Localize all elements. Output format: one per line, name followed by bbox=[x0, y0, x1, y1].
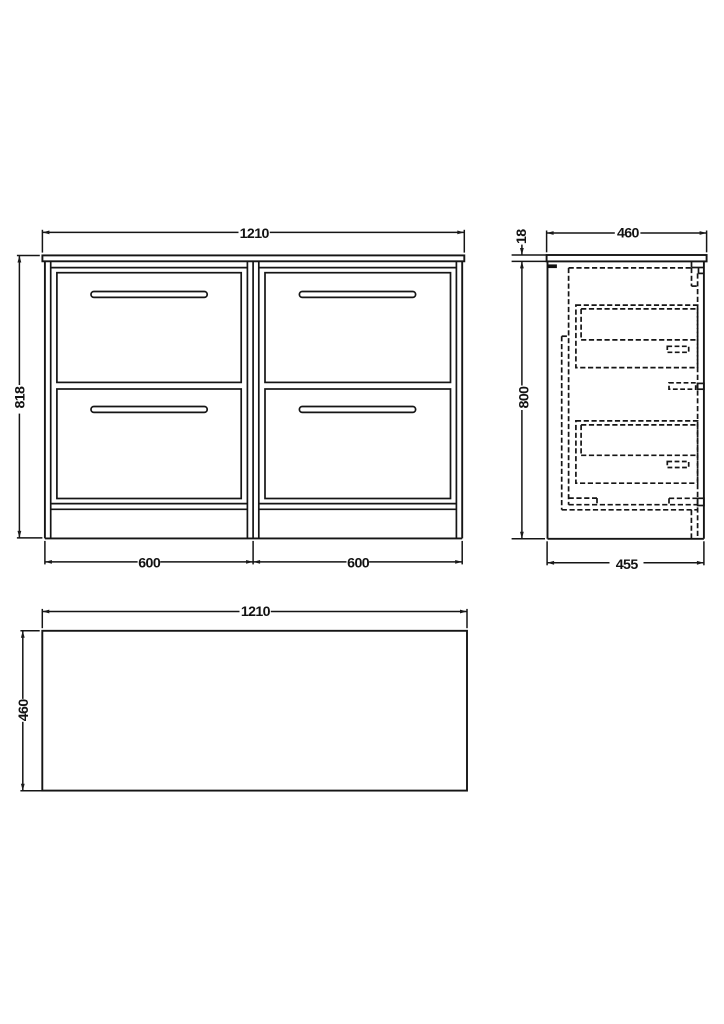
svg-text:1210: 1210 bbox=[240, 226, 270, 242]
svg-text:600: 600 bbox=[347, 555, 370, 571]
svg-text:18: 18 bbox=[514, 229, 530, 244]
svg-text:455: 455 bbox=[616, 557, 639, 573]
svg-text:460: 460 bbox=[16, 699, 32, 722]
svg-text:1210: 1210 bbox=[241, 604, 271, 620]
svg-text:460: 460 bbox=[617, 225, 640, 241]
svg-text:818: 818 bbox=[13, 386, 29, 409]
svg-text:600: 600 bbox=[138, 555, 161, 571]
svg-text:800: 800 bbox=[516, 386, 532, 409]
